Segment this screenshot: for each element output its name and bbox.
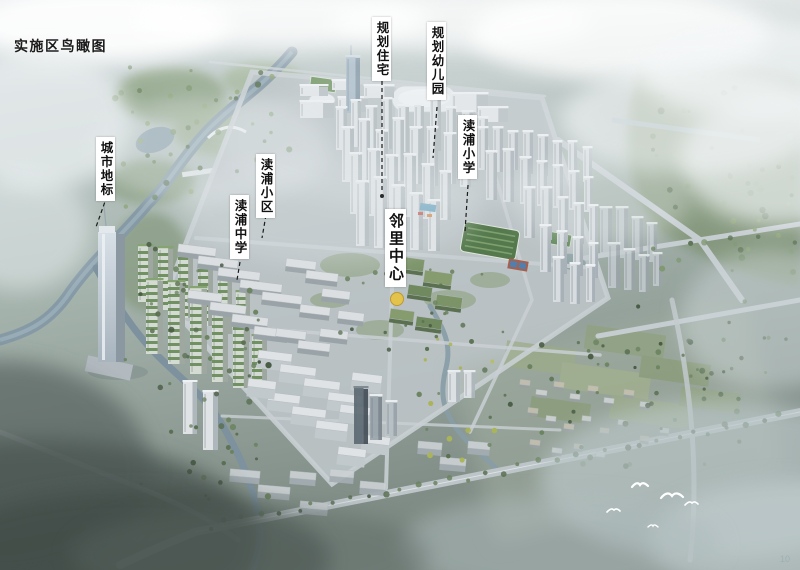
- label-dupu-middle-school: 渎浦中学: [230, 195, 249, 259]
- aerial-rendering-page: 实施区鸟瞰图 城市地标 渎浦小区 渎浦中学 规划住宅 规划幼儿园 渎浦小学 邻里…: [0, 0, 800, 570]
- label-planned-kindergarten: 规划幼儿园: [427, 22, 446, 100]
- label-neighborhood-center: 邻里中心: [385, 209, 406, 287]
- label-dupu-primary-school: 渎浦小学: [458, 115, 477, 179]
- page-number: 10: [780, 554, 790, 564]
- label-city-landmark: 城市地标: [96, 137, 115, 201]
- yellow-dome: [391, 293, 404, 306]
- label-planned-residence: 规划住宅: [372, 17, 391, 81]
- leader-endpoint-dot: [380, 194, 384, 198]
- label-dupu-community: 渎浦小区: [256, 154, 275, 218]
- page-title: 实施区鸟瞰图: [14, 36, 107, 56]
